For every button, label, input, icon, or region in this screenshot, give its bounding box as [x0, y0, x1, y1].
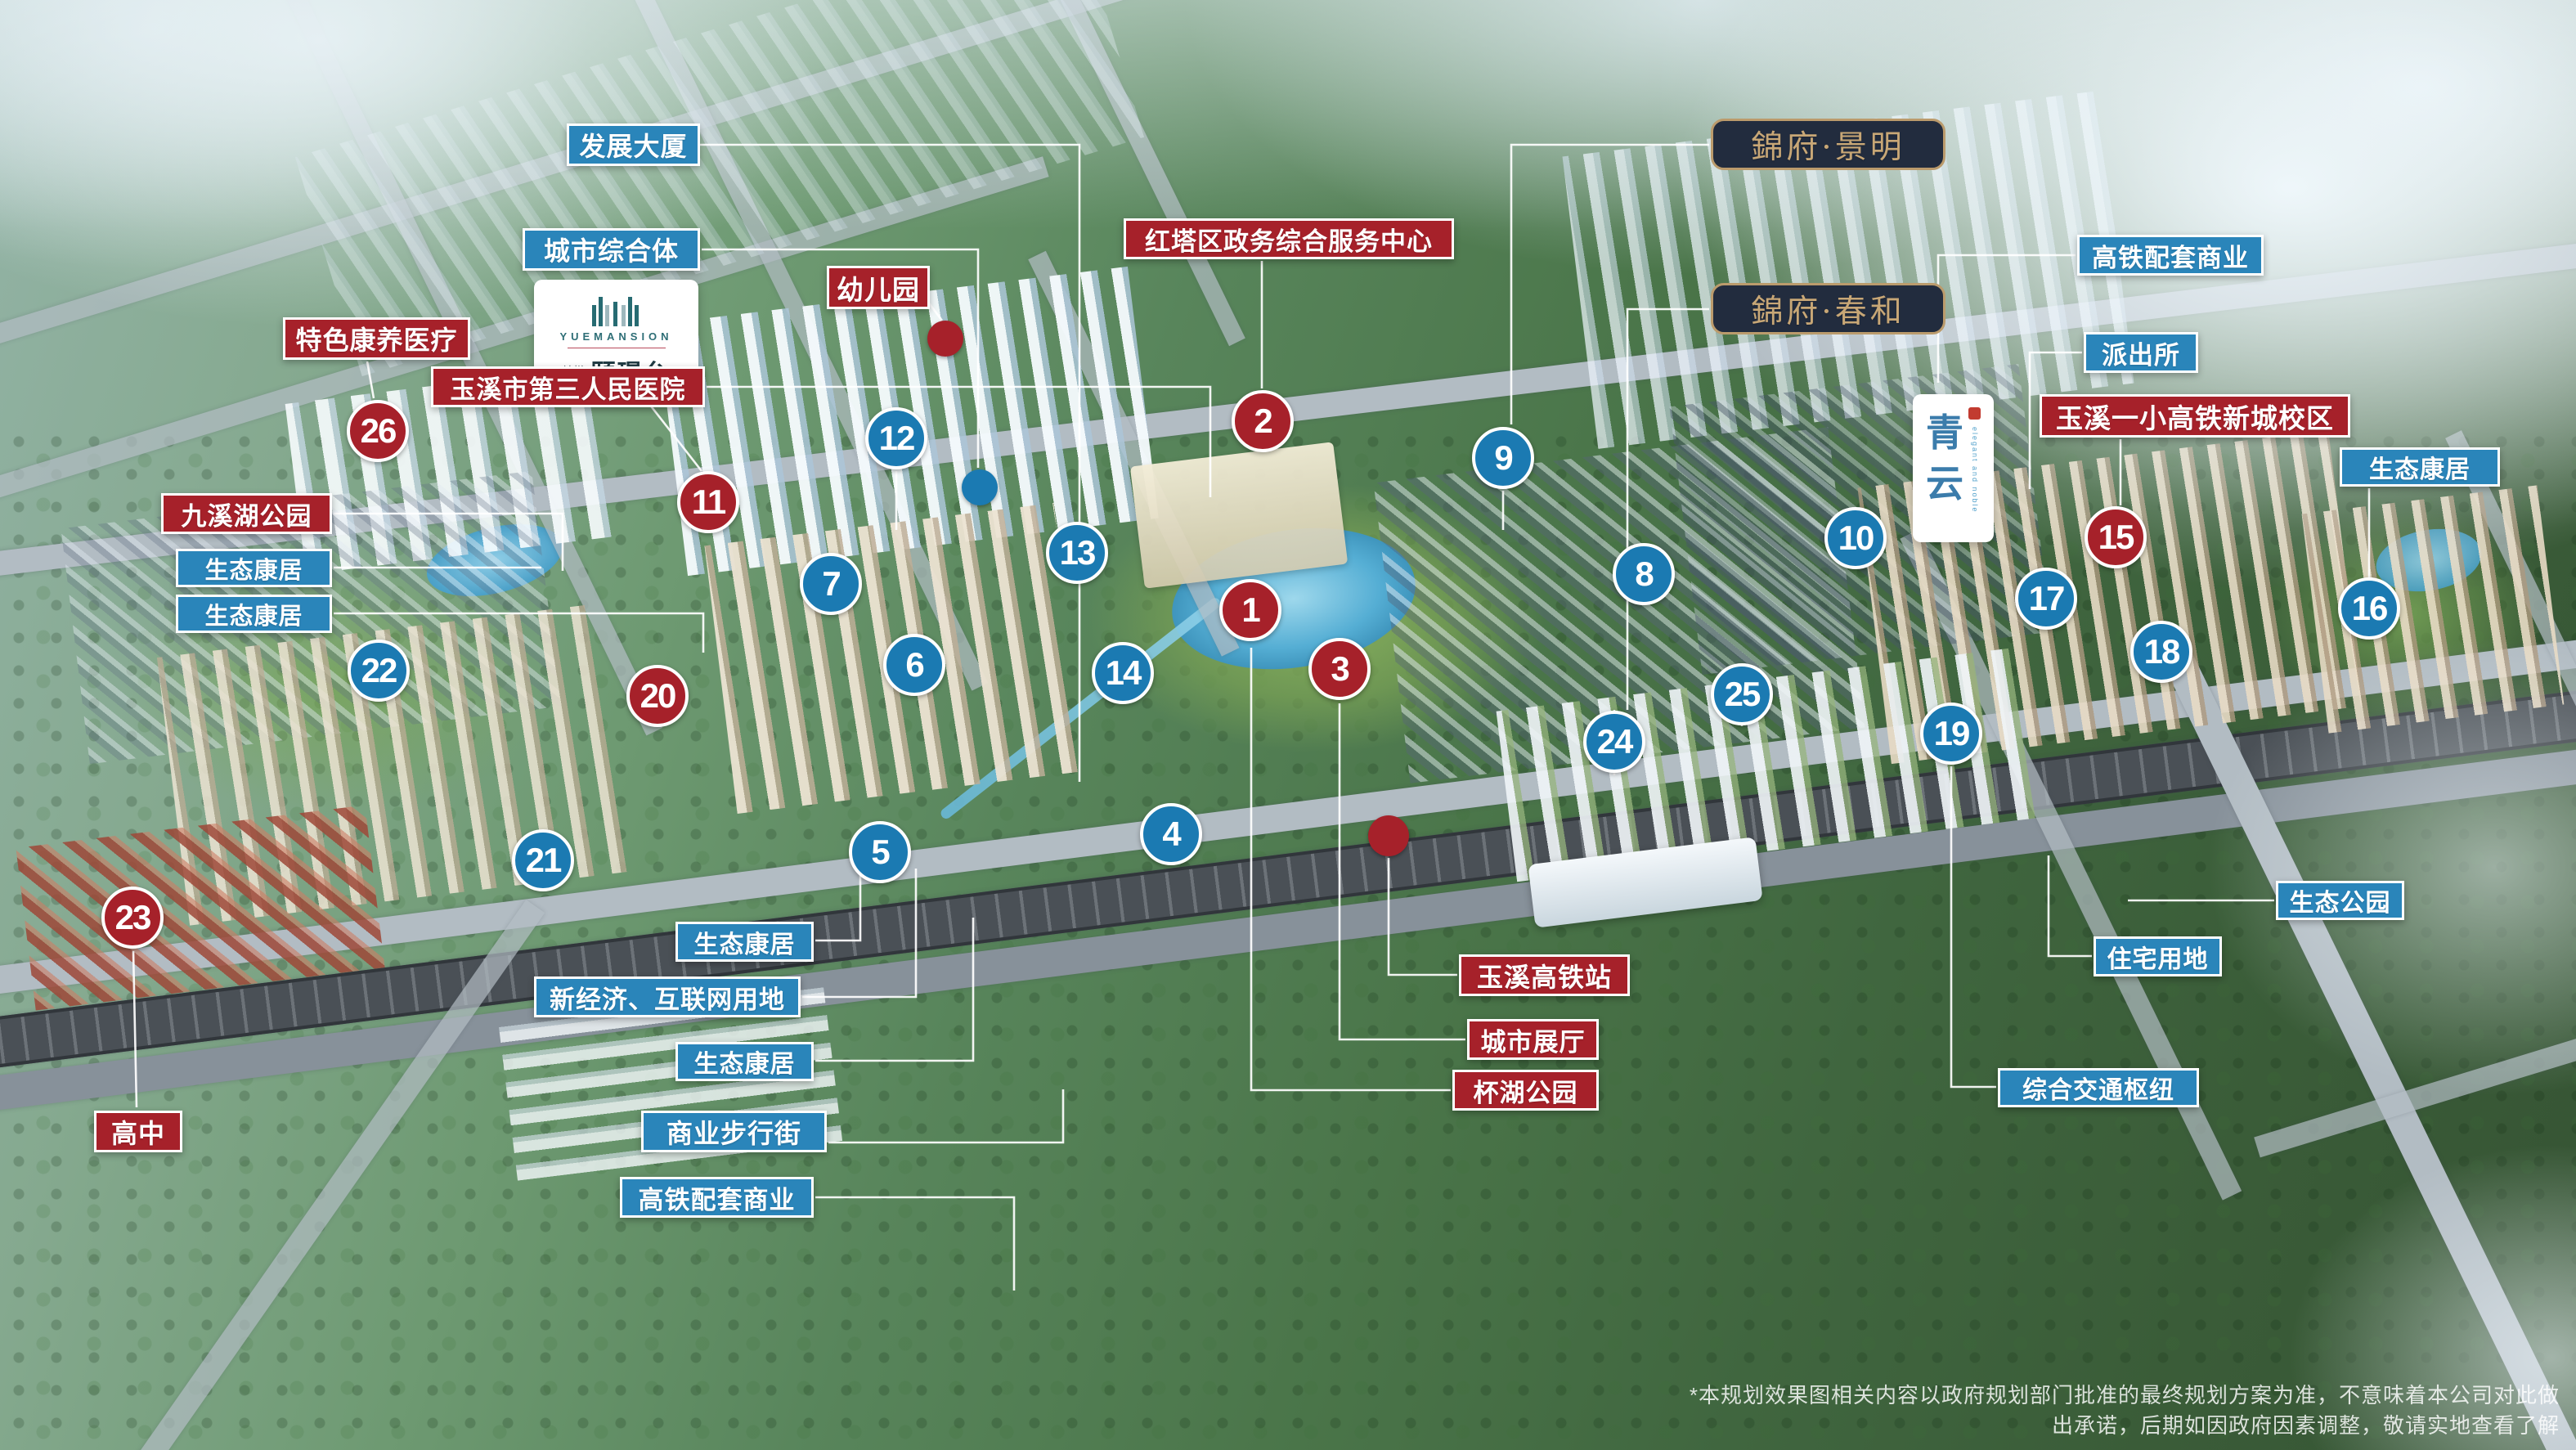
- map-marker-15: 15: [2085, 506, 2147, 568]
- masterplan-map: YUEMANSION 锦悦· 颐璟台 青 云 elegant and noble…: [0, 0, 2576, 1450]
- logo-divider: [568, 348, 666, 348]
- map-marker-14: 14: [1092, 642, 1154, 704]
- label-yuxi-gaotiezhan: 玉溪高铁站: [1459, 954, 1630, 996]
- map-marker-5: 5: [849, 821, 911, 883]
- label-shengtai-kangju-b2: 生态康居: [675, 1042, 814, 1081]
- map-marker-16: 16: [2338, 577, 2400, 640]
- dot-youeryuan: [927, 321, 963, 357]
- label-disan-renmin-yiyuan: 玉溪市第三人民医院: [431, 366, 705, 407]
- map-marker-25: 25: [1711, 663, 1773, 725]
- yuemansion-wordmark: YUEMANSION: [559, 330, 672, 343]
- map-marker-1: 1: [1219, 579, 1281, 641]
- yuemansion-building-icon: [577, 294, 656, 326]
- map-marker-11: 11: [677, 471, 739, 533]
- map-marker-8: 8: [1613, 543, 1675, 605]
- label-xinjingji-hulianwang-yongdi: 新经济、互联网用地: [534, 976, 801, 1017]
- label-yuxi-yixiao-xiaoqu: 玉溪一小高铁新城校区: [2040, 394, 2350, 438]
- map-marker-2: 2: [1232, 390, 1294, 452]
- label-zhuzhai-yongdi: 住宅用地: [2094, 936, 2222, 976]
- qingyun-seal-icon: [1968, 407, 1981, 420]
- label-beihu-gongyuan: 杯湖公园: [1452, 1070, 1599, 1111]
- map-marker-17: 17: [2015, 568, 2077, 630]
- label-youeryuan: 幼儿园: [827, 266, 930, 309]
- map-marker-22: 22: [348, 640, 410, 702]
- label-tese-kangyang-yiliao: 特色康养医疗: [283, 317, 470, 360]
- qingyun-char-1: 青: [1926, 407, 1963, 458]
- government-center-building: [1130, 442, 1348, 588]
- dot-chengshi-zongheti: [962, 469, 998, 505]
- disclaimer-text: *本规划效果图相关内容以政府规划部门批准的最终规划方案为准，不意味着本公司对此做…: [1685, 1379, 2560, 1439]
- map-marker-12: 12: [865, 407, 927, 469]
- label-shengtai-kangju-b1: 生态康居: [675, 922, 814, 962]
- map-marker-7: 7: [800, 553, 862, 615]
- dot-chengshi-zhanting: [1368, 815, 1409, 856]
- map-marker-3: 3: [1308, 638, 1371, 700]
- map-marker-19: 19: [1920, 703, 1982, 765]
- label-zonghe-jiaotong-shuniu: 综合交通枢纽: [1998, 1068, 2199, 1107]
- map-marker-23: 23: [101, 887, 164, 949]
- label-jinfu-jingming: 錦府·景明: [1711, 119, 1945, 170]
- label-shengtai-kangju-l1: 生态康居: [176, 549, 332, 587]
- map-marker-21: 21: [512, 829, 574, 891]
- qingyun-logo-card: 青 云 elegant and noble: [1913, 394, 1994, 542]
- qingyun-tagline: elegant and noble: [1971, 427, 1979, 514]
- label-jiuxihu-gongyuan: 九溪湖公园: [161, 493, 332, 534]
- label-fazhan-dasha: 发展大厦: [567, 123, 700, 166]
- map-marker-4: 4: [1140, 803, 1202, 865]
- qingyun-cn-name: 青 云: [1926, 407, 1963, 509]
- label-hongtaqu-zhengwu-zhongxin: 红塔区政务综合服务中心: [1124, 218, 1454, 259]
- map-marker-10: 10: [1824, 507, 1887, 569]
- label-jinfu-chunhe: 錦府·春和: [1711, 283, 1945, 334]
- label-shangye-buxingjie: 商业步行街: [641, 1111, 827, 1152]
- label-chengshi-zhanting: 城市展厅: [1467, 1019, 1599, 1060]
- map-marker-26: 26: [347, 400, 409, 462]
- label-gaotie-peitao-shangye-top: 高铁配套商业: [2077, 235, 2264, 276]
- label-gaotie-peitao-shangye-bottom: 高铁配套商业: [620, 1177, 814, 1218]
- map-marker-18: 18: [2130, 621, 2192, 683]
- map-marker-6: 6: [883, 634, 945, 696]
- label-shengtai-kangju-tr: 生态康居: [2340, 447, 2500, 487]
- map-marker-20: 20: [626, 665, 689, 727]
- qingyun-char-2: 云: [1926, 458, 1963, 509]
- label-paichusuo: 派出所: [2084, 332, 2198, 373]
- label-gaozhong: 高中: [94, 1111, 182, 1152]
- map-marker-9: 9: [1472, 427, 1534, 489]
- label-shengtai-kangju-l2: 生态康居: [176, 595, 332, 633]
- label-shengtai-gongyuan: 生态公园: [2276, 881, 2404, 920]
- map-marker-24: 24: [1583, 711, 1645, 773]
- map-marker-13: 13: [1046, 522, 1108, 584]
- label-chengshi-zongheti: 城市综合体: [523, 228, 700, 271]
